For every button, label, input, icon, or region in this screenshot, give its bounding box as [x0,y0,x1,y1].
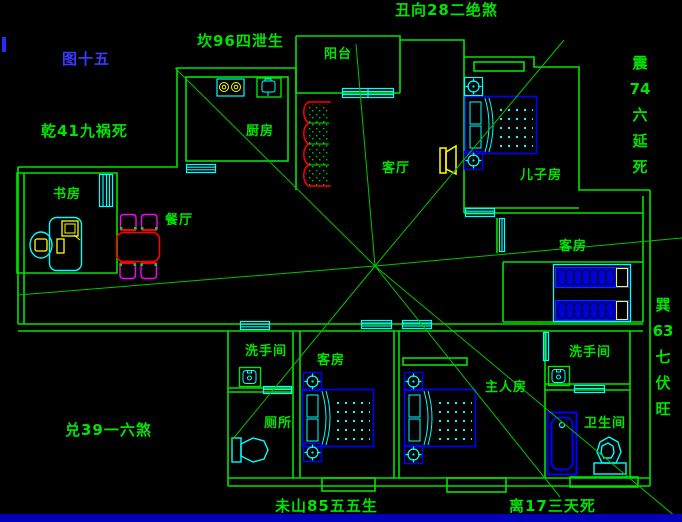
annotation-east-line: 震 [627,50,653,76]
room-label-study: 书房 [53,188,81,202]
annotation-east-line: 六 [627,102,653,128]
sofa [304,102,331,186]
room-label-dining: 餐厅 [165,214,193,228]
room-label-guest-bottom: 客房 [317,354,345,368]
annotation-southeast-line: 63 [650,318,676,344]
annotation-southeast-line: 巽 [650,292,676,318]
room-label-washroom-left: 洗手间 [245,345,287,359]
annotation-south-left: 未山85五五生 [275,499,378,513]
annotation-north: 坎96四泄生 [197,34,284,48]
figure-label: 图十五 [62,52,110,66]
room-label-guest-right: 客房 [559,240,587,254]
annotation-southeast-line: 七 [650,344,676,370]
room-label-toilet: 厕所 [264,417,292,431]
room-label-master: 主人房 [485,381,527,395]
annotation-east-line: 死 [627,154,653,180]
annotation-east-line: 74 [627,76,653,102]
annotation-south-right: 离17三天死 [509,499,596,513]
annotation-east-vertical: 震 74 六 延 死 [627,50,653,180]
kitchen-sink [257,78,281,97]
stove [217,79,244,96]
room-label-living: 客厅 [382,162,410,176]
bed-master [405,390,476,447]
toilet-fixture-right [594,437,626,474]
dining-set [117,215,160,279]
toilet-fixture-left [232,438,268,462]
annotation-northeast: 丑向28二绝煞 [395,3,498,17]
annotation-southeast-vertical: 巽 63 七 伏 旺 [650,292,676,422]
washbasin-right [549,367,570,386]
bottom-taskbar-strip [0,514,682,522]
annotation-southeast-line: 伏 [650,370,676,396]
annotation-west: 兑39一六煞 [65,423,152,437]
room-label-balcony: 阳台 [324,48,352,62]
twin-beds-guest-right [554,265,631,322]
window-edge-mark [2,37,6,52]
floorplan-svg [0,0,682,522]
room-label-son-room: 儿子房 [520,169,562,183]
bed-guest-bottom [303,390,374,447]
annotation-northwest: 乾41九祸死 [41,124,128,138]
room-label-kitchen: 厨房 [246,125,274,139]
room-label-washroom-right: 洗手间 [569,346,611,360]
annotation-southeast-line: 旺 [650,396,676,422]
annotation-east-line: 延 [627,128,653,154]
room-label-bathroom: 卫生间 [584,417,626,431]
cad-floorplan-screen: 图十五 坎96四泄生 丑向28二绝煞 乾41九祸死 兑39一六煞 未山85五五生… [0,0,682,522]
study-desk [30,218,82,271]
washbasin-left [240,368,261,387]
tv-speaker [440,146,456,174]
